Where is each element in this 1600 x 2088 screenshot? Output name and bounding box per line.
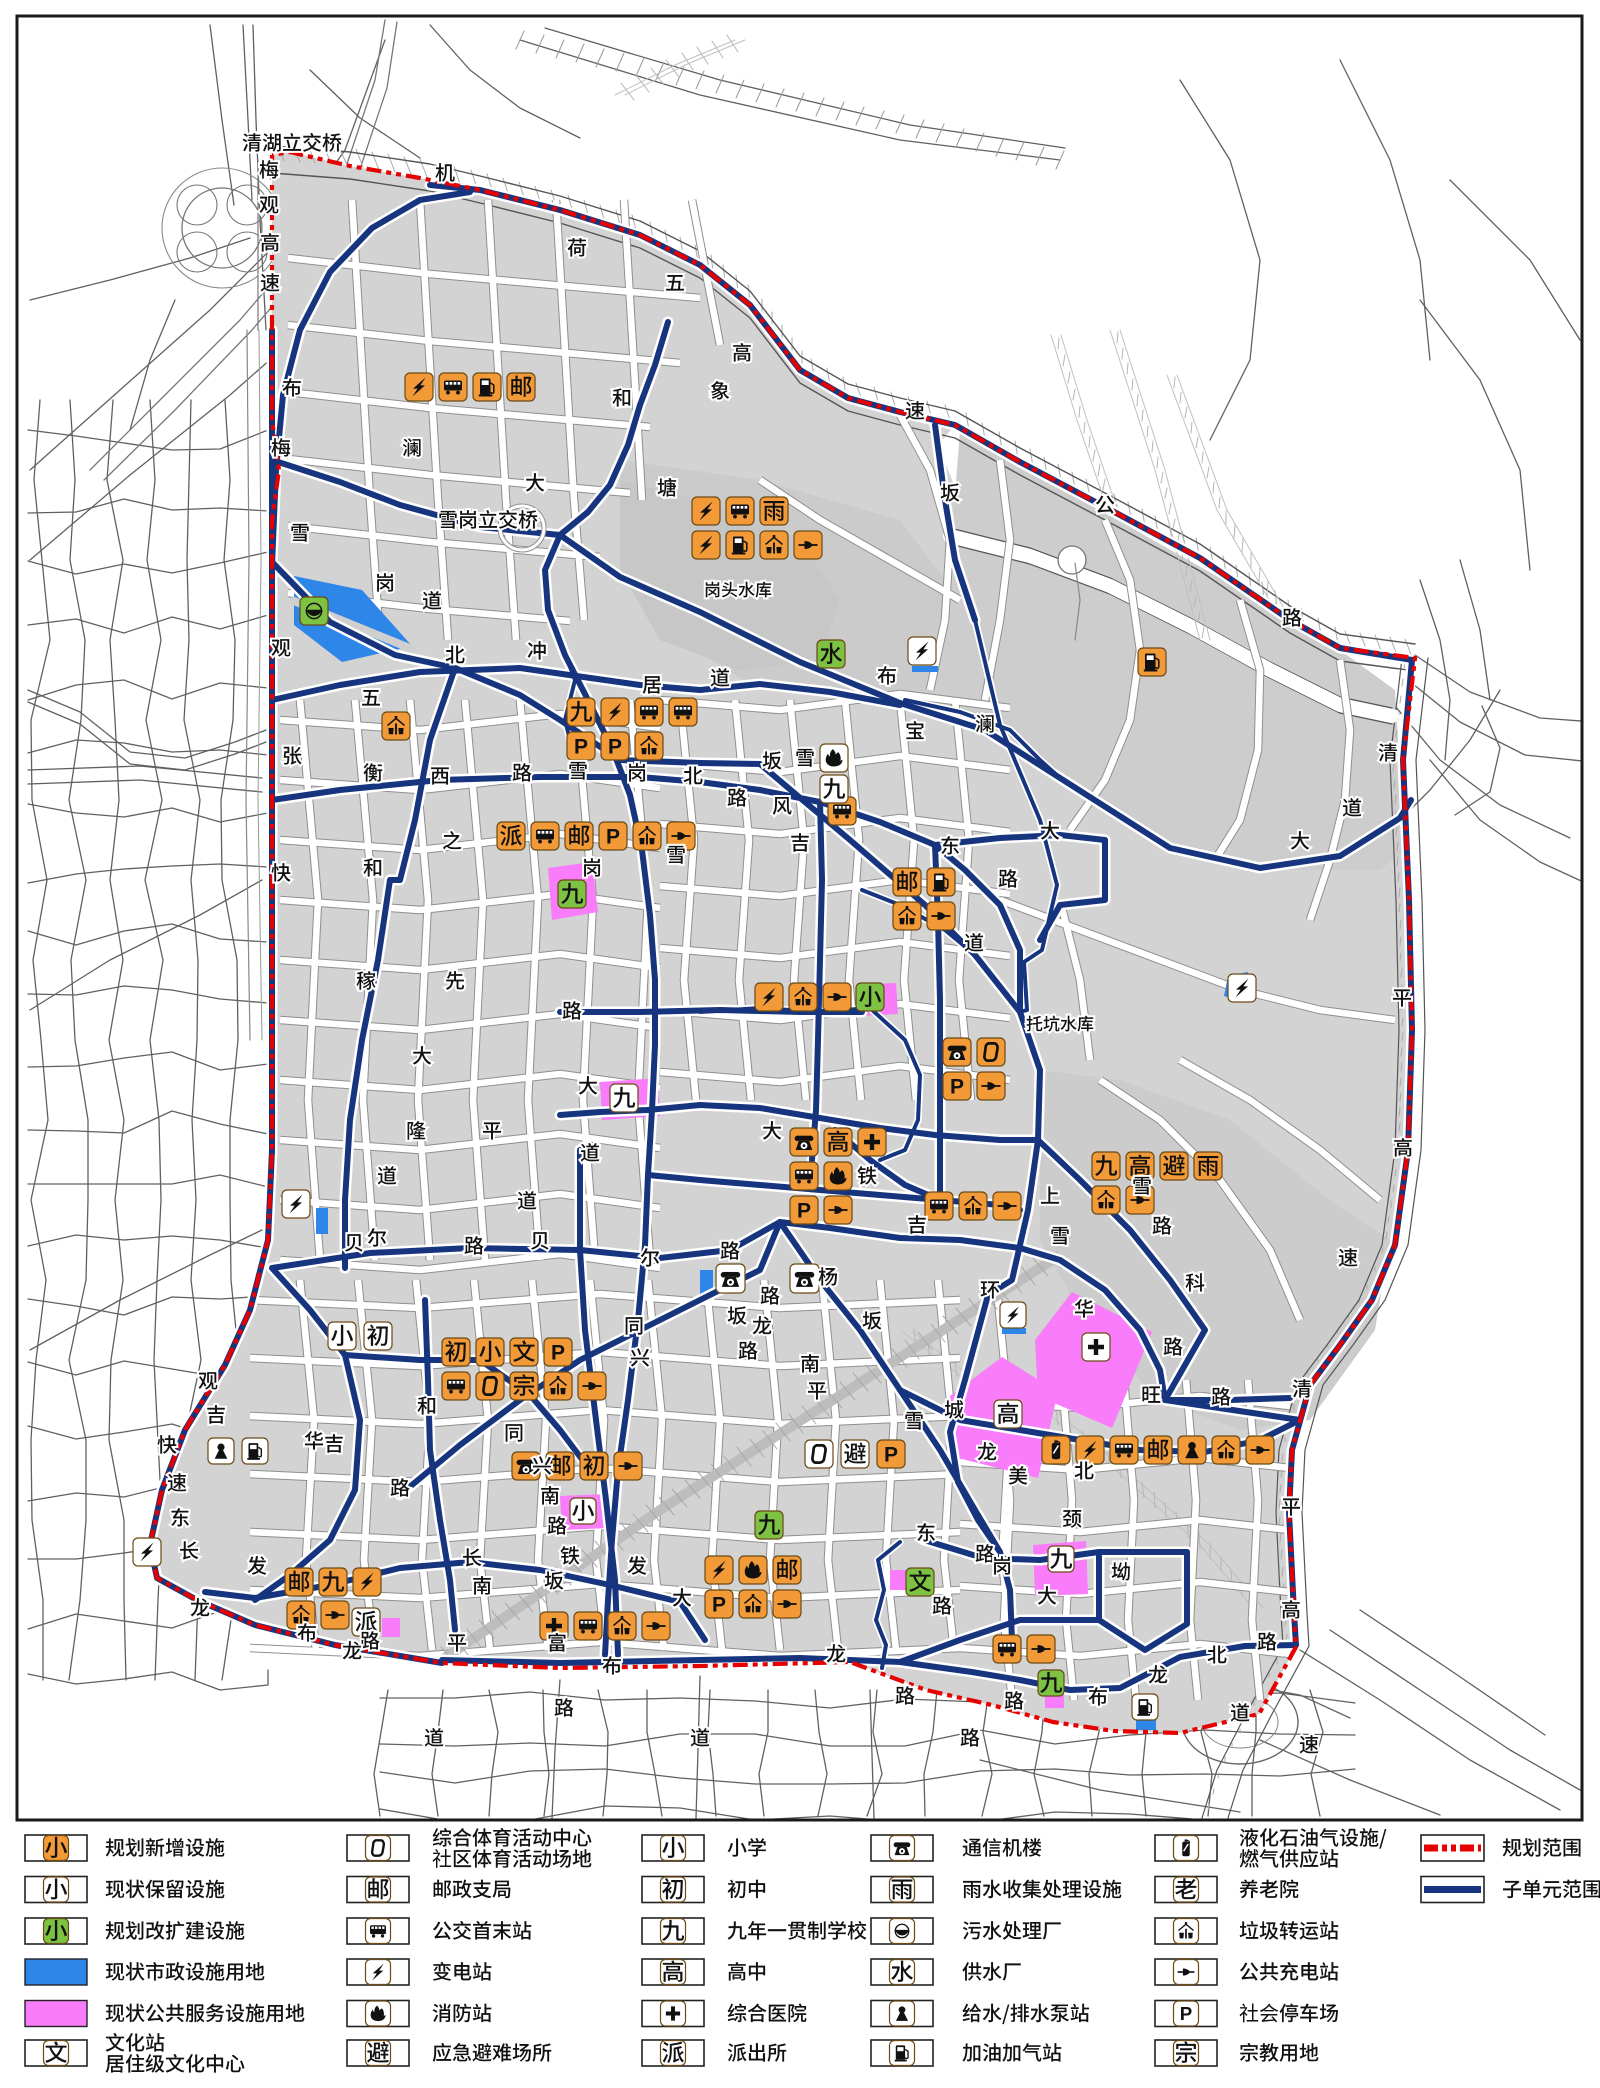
svg-text:居: 居 <box>642 669 662 698</box>
svg-text:现状公共服务设施用地: 现状公共服务设施用地 <box>105 1998 305 2027</box>
svg-text:贝: 贝 <box>530 1225 550 1254</box>
svg-text:高: 高 <box>1393 1132 1413 1161</box>
svg-text:雪: 雪 <box>568 755 588 784</box>
svg-text:尔: 尔 <box>640 1242 660 1271</box>
svg-text:公交首末站: 公交首末站 <box>432 1915 532 1944</box>
svg-text:初: 初 <box>583 1447 606 1481</box>
svg-text:梅: 梅 <box>271 432 291 461</box>
svg-text:贝: 贝 <box>344 1227 364 1256</box>
svg-text:澜: 澜 <box>975 708 995 737</box>
svg-text:龙: 龙 <box>1148 1659 1168 1688</box>
svg-text:现状保留设施: 现状保留设施 <box>105 1874 225 1903</box>
svg-text:路: 路 <box>738 1335 758 1364</box>
svg-text:高: 高 <box>732 337 752 366</box>
svg-text:九: 九 <box>758 1506 781 1540</box>
svg-text:清湖立交桥: 清湖立交桥 <box>242 127 342 156</box>
svg-text:道: 道 <box>690 1722 710 1751</box>
svg-text:初: 初 <box>445 1333 468 1367</box>
svg-text:路: 路 <box>1211 1381 1231 1410</box>
svg-text:派: 派 <box>500 817 523 851</box>
svg-text:路: 路 <box>512 757 532 786</box>
svg-text:布: 布 <box>282 372 302 401</box>
svg-text:文: 文 <box>513 1333 536 1367</box>
svg-text:衡: 衡 <box>363 757 383 786</box>
svg-text:路: 路 <box>1257 1626 1277 1655</box>
svg-text:华: 华 <box>1074 1293 1094 1322</box>
svg-text:南: 南 <box>472 1570 492 1599</box>
svg-text:子单元范围: 子单元范围 <box>1502 1874 1600 1903</box>
svg-text:邮: 邮 <box>510 368 533 402</box>
svg-text:坂: 坂 <box>940 477 960 506</box>
svg-text:速: 速 <box>1338 1242 1358 1271</box>
svg-text:宗: 宗 <box>1175 2034 1198 2068</box>
svg-text:北: 北 <box>683 760 703 789</box>
svg-text:雪: 雪 <box>290 517 310 546</box>
svg-text:北: 北 <box>1074 1455 1094 1484</box>
svg-text:长: 长 <box>462 1542 482 1571</box>
svg-text:公: 公 <box>1095 489 1115 518</box>
svg-text:岗: 岗 <box>627 757 647 786</box>
svg-text:派出所: 派出所 <box>727 2037 787 2066</box>
svg-text:高: 高 <box>662 1953 685 1987</box>
svg-text:公共充电站: 公共充电站 <box>1239 1956 1339 1985</box>
svg-text:坂: 坂 <box>727 1300 747 1329</box>
svg-text:初: 初 <box>662 1871 685 1905</box>
svg-text:供水厂: 供水厂 <box>962 1956 1022 1985</box>
svg-text:路: 路 <box>720 1235 740 1264</box>
svg-text:九: 九 <box>1040 1664 1063 1698</box>
svg-text:宝: 宝 <box>905 715 925 744</box>
svg-text:布: 布 <box>1088 1681 1108 1710</box>
svg-text:路: 路 <box>932 1590 952 1619</box>
svg-text:邮: 邮 <box>288 1563 311 1597</box>
svg-text:平: 平 <box>1392 982 1412 1011</box>
svg-text:旺: 旺 <box>1141 1379 1161 1408</box>
svg-text:龙: 龙 <box>752 1310 772 1339</box>
svg-text:现状市政设施用地: 现状市政设施用地 <box>105 1956 265 1985</box>
svg-text:水: 水 <box>891 1953 914 1987</box>
svg-text:观: 观 <box>198 1365 218 1394</box>
svg-text:避: 避 <box>1163 1147 1186 1181</box>
svg-text:铁: 铁 <box>857 1160 877 1189</box>
svg-text:稼: 稼 <box>356 965 376 994</box>
svg-text:大: 大 <box>525 467 545 496</box>
svg-text:雪: 雪 <box>666 839 686 868</box>
svg-text:养老院: 养老院 <box>1239 1874 1299 1903</box>
svg-text:颈: 颈 <box>1062 1503 1082 1532</box>
svg-text:道: 道 <box>377 1160 397 1189</box>
svg-text:环: 环 <box>980 1274 1000 1303</box>
svg-text:先: 先 <box>445 965 465 994</box>
svg-text:长: 长 <box>179 1535 199 1564</box>
svg-text:大: 大 <box>1040 815 1060 844</box>
svg-text:雨水收集处理设施: 雨水收集处理设施 <box>962 1874 1122 1903</box>
svg-text:平: 平 <box>807 1375 827 1404</box>
svg-text:高: 高 <box>260 227 280 256</box>
svg-text:路: 路 <box>390 1472 410 1501</box>
svg-text:东: 东 <box>170 1502 190 1531</box>
svg-text:道: 道 <box>710 662 730 691</box>
svg-text:梅: 梅 <box>259 154 279 183</box>
svg-text:规划新增设施: 规划新增设施 <box>105 1832 225 1861</box>
svg-text:九: 九 <box>662 1912 685 1946</box>
svg-text:杨: 杨 <box>818 1261 838 1290</box>
svg-text:平: 平 <box>447 1627 467 1656</box>
svg-text:上: 上 <box>1040 1180 1060 1209</box>
svg-text:大: 大 <box>412 1040 432 1069</box>
svg-text:布: 布 <box>297 1617 317 1646</box>
svg-text:道: 道 <box>1230 1697 1250 1726</box>
svg-text:吉: 吉 <box>206 1399 226 1428</box>
svg-text:坂: 坂 <box>862 1305 882 1334</box>
svg-text:北: 北 <box>445 639 465 668</box>
svg-text:龙: 龙 <box>826 1638 846 1667</box>
svg-text:九: 九 <box>613 1079 636 1113</box>
svg-text:托坑水库: 托坑水库 <box>1026 1010 1094 1035</box>
svg-text:社区体育活动场地: 社区体育活动场地 <box>432 1843 592 1872</box>
svg-text:路: 路 <box>727 782 747 811</box>
svg-text:速: 速 <box>1299 1729 1319 1758</box>
svg-text:派: 派 <box>662 2034 685 2068</box>
svg-text:风: 风 <box>772 790 792 819</box>
svg-text:高: 高 <box>827 1123 850 1157</box>
svg-text:龙: 龙 <box>977 1436 997 1465</box>
svg-text:发: 发 <box>627 1550 647 1579</box>
svg-text:东: 东 <box>916 1517 936 1546</box>
svg-text:小: 小 <box>45 1912 68 1946</box>
svg-text:小: 小 <box>45 1871 68 1905</box>
svg-text:文: 文 <box>45 2034 68 2068</box>
svg-text:吉: 吉 <box>324 1428 344 1457</box>
svg-text:雪岗立交桥: 雪岗立交桥 <box>438 504 538 533</box>
svg-text:吉: 吉 <box>790 827 810 856</box>
svg-text:华: 华 <box>304 1425 324 1454</box>
svg-text:老: 老 <box>1175 1871 1198 1905</box>
svg-text:消防站: 消防站 <box>432 1998 492 2027</box>
svg-text:兴: 兴 <box>630 1342 650 1371</box>
svg-text:文: 文 <box>909 1563 932 1597</box>
svg-text:机: 机 <box>435 157 455 186</box>
svg-text:和: 和 <box>363 852 383 881</box>
svg-text:邮: 邮 <box>568 817 591 851</box>
svg-text:邮: 邮 <box>776 1551 799 1585</box>
svg-text:污水处理厂: 污水处理厂 <box>962 1915 1062 1944</box>
svg-text:布: 布 <box>602 1650 622 1679</box>
svg-text:城: 城 <box>944 1394 964 1423</box>
svg-text:雪: 雪 <box>1050 1220 1070 1249</box>
svg-text:大: 大 <box>1037 1580 1057 1609</box>
svg-text:和: 和 <box>612 382 632 411</box>
svg-text:清: 清 <box>1292 1373 1312 1402</box>
svg-text:道: 道 <box>517 1185 537 1214</box>
svg-text:小学: 小学 <box>727 1832 767 1861</box>
svg-text:路: 路 <box>1282 602 1302 631</box>
svg-text:象: 象 <box>710 375 730 404</box>
svg-text:道: 道 <box>422 585 442 614</box>
svg-text:路: 路 <box>760 1280 780 1309</box>
svg-text:变电站: 变电站 <box>432 1956 492 1985</box>
svg-text:路: 路 <box>1163 1331 1183 1360</box>
svg-text:垃圾转运站: 垃圾转运站 <box>1239 1915 1339 1944</box>
svg-text:大: 大 <box>1290 825 1310 854</box>
svg-text:同: 同 <box>624 1310 644 1339</box>
svg-text:邮: 邮 <box>896 863 919 897</box>
svg-text:大: 大 <box>578 1070 598 1099</box>
svg-text:路: 路 <box>1152 1210 1172 1239</box>
svg-text:道: 道 <box>424 1722 444 1751</box>
svg-text:坂: 坂 <box>762 745 782 774</box>
svg-text:高: 高 <box>997 1395 1020 1429</box>
svg-text:发: 发 <box>247 1550 267 1579</box>
svg-text:避: 避 <box>367 2034 390 2068</box>
svg-text:燃气供应站: 燃气供应站 <box>1239 1843 1339 1872</box>
svg-text:大: 大 <box>672 1582 692 1611</box>
svg-text:社会停车场: 社会停车场 <box>1239 1998 1339 2027</box>
svg-text:雨: 雨 <box>891 1871 914 1905</box>
svg-text:观: 观 <box>259 189 279 218</box>
svg-text:岗: 岗 <box>582 852 602 881</box>
svg-text:道: 道 <box>1342 792 1362 821</box>
svg-text:和: 和 <box>417 1390 437 1419</box>
svg-text:避: 避 <box>844 1435 867 1469</box>
svg-text:路: 路 <box>562 995 582 1024</box>
svg-text:规划范围: 规划范围 <box>1502 1832 1582 1861</box>
svg-text:富: 富 <box>547 1627 567 1656</box>
svg-text:清: 清 <box>1378 737 1398 766</box>
svg-text:雪: 雪 <box>904 1405 924 1434</box>
svg-text:给水/排水泵站: 给水/排水泵站 <box>962 1998 1090 2027</box>
svg-text:路: 路 <box>554 1692 574 1721</box>
svg-text:邮: 邮 <box>1147 1431 1170 1465</box>
svg-text:路: 路 <box>547 1510 567 1539</box>
svg-text:快: 快 <box>157 1429 177 1458</box>
svg-text:九年一贯制学校: 九年一贯制学校 <box>727 1915 867 1944</box>
svg-text:水: 水 <box>820 635 843 669</box>
svg-text:规划改扩建设施: 规划改扩建设施 <box>105 1915 245 1944</box>
svg-text:观: 观 <box>271 632 291 661</box>
svg-text:澜: 澜 <box>402 432 422 461</box>
svg-text:同: 同 <box>504 1417 524 1446</box>
svg-text:坂: 坂 <box>544 1565 564 1594</box>
svg-text:路: 路 <box>1004 1685 1024 1714</box>
svg-text:南: 南 <box>540 1480 560 1509</box>
svg-text:雨: 雨 <box>763 492 786 526</box>
svg-text:坳: 坳 <box>1111 1556 1131 1585</box>
svg-text:岗: 岗 <box>375 567 395 596</box>
svg-text:路: 路 <box>360 1625 380 1654</box>
svg-text:小: 小 <box>572 1492 595 1526</box>
svg-text:五: 五 <box>361 682 381 711</box>
svg-text:高中: 高中 <box>727 1956 767 1985</box>
svg-text:小: 小 <box>859 978 882 1012</box>
svg-text:九: 九 <box>1050 1540 1073 1574</box>
svg-text:雨: 雨 <box>1197 1147 1220 1181</box>
svg-text:龙: 龙 <box>342 1635 362 1664</box>
svg-text:小: 小 <box>45 1829 68 1863</box>
svg-text:速: 速 <box>167 1467 187 1496</box>
svg-text:岗: 岗 <box>992 1550 1012 1579</box>
svg-text:路: 路 <box>464 1230 484 1259</box>
svg-text:路: 路 <box>998 863 1018 892</box>
svg-text:通信机楼: 通信机楼 <box>962 1832 1042 1861</box>
svg-text:小: 小 <box>662 1829 685 1863</box>
svg-text:快: 快 <box>271 857 291 886</box>
svg-text:美: 美 <box>1008 1460 1028 1489</box>
svg-text:隆: 隆 <box>406 1115 426 1144</box>
svg-text:荷: 荷 <box>567 232 587 261</box>
svg-text:速: 速 <box>905 395 925 424</box>
svg-text:路: 路 <box>895 1680 915 1709</box>
svg-text:路: 路 <box>960 1722 980 1751</box>
svg-text:布: 布 <box>877 660 897 689</box>
svg-text:平: 平 <box>482 1115 502 1144</box>
svg-text:九: 九 <box>823 770 846 804</box>
svg-text:九: 九 <box>322 1563 345 1597</box>
svg-text:初中: 初中 <box>727 1874 767 1903</box>
svg-text:邮: 邮 <box>367 1871 390 1905</box>
svg-text:道: 道 <box>964 927 984 956</box>
svg-text:小: 小 <box>331 1317 354 1351</box>
svg-text:高: 高 <box>1281 1594 1301 1623</box>
svg-text:西: 西 <box>430 760 450 789</box>
svg-text:科: 科 <box>1185 1267 1205 1296</box>
svg-text:九: 九 <box>1095 1147 1118 1181</box>
svg-text:邮政支局: 邮政支局 <box>432 1874 512 1903</box>
svg-text:雪: 雪 <box>1132 1170 1152 1199</box>
svg-text:宗: 宗 <box>513 1367 536 1401</box>
svg-text:居住级文化中心: 居住级文化中心 <box>105 2048 245 2077</box>
svg-text:龙: 龙 <box>190 1592 210 1621</box>
svg-text:雪: 雪 <box>795 742 815 771</box>
svg-text:张: 张 <box>282 740 302 769</box>
svg-text:小: 小 <box>479 1333 502 1367</box>
svg-text:五: 五 <box>665 267 685 296</box>
svg-text:吉: 吉 <box>907 1209 927 1238</box>
svg-text:大: 大 <box>762 1115 782 1144</box>
svg-text:初: 初 <box>367 1317 390 1351</box>
svg-text:之: 之 <box>442 825 462 854</box>
svg-text:冲: 冲 <box>527 635 547 664</box>
svg-text:九: 九 <box>570 693 593 727</box>
svg-text:加油加气站: 加油加气站 <box>962 2037 1062 2066</box>
svg-text:宗教用地: 宗教用地 <box>1239 2037 1319 2066</box>
svg-text:尔: 尔 <box>367 1222 387 1251</box>
svg-text:东: 东 <box>940 830 960 859</box>
svg-text:九: 九 <box>561 875 584 909</box>
svg-text:平: 平 <box>1281 1491 1301 1520</box>
svg-text:道: 道 <box>580 1137 600 1166</box>
svg-text:岗头水库: 岗头水库 <box>704 576 772 601</box>
svg-text:综合医院: 综合医院 <box>727 1998 807 2027</box>
svg-text:兴: 兴 <box>532 1450 552 1479</box>
svg-text:塘: 塘 <box>657 472 677 501</box>
svg-text:北: 北 <box>1207 1639 1227 1668</box>
svg-text:速: 速 <box>260 267 280 296</box>
svg-text:应急避难场所: 应急避难场所 <box>432 2037 552 2066</box>
svg-text:南: 南 <box>800 1348 820 1377</box>
